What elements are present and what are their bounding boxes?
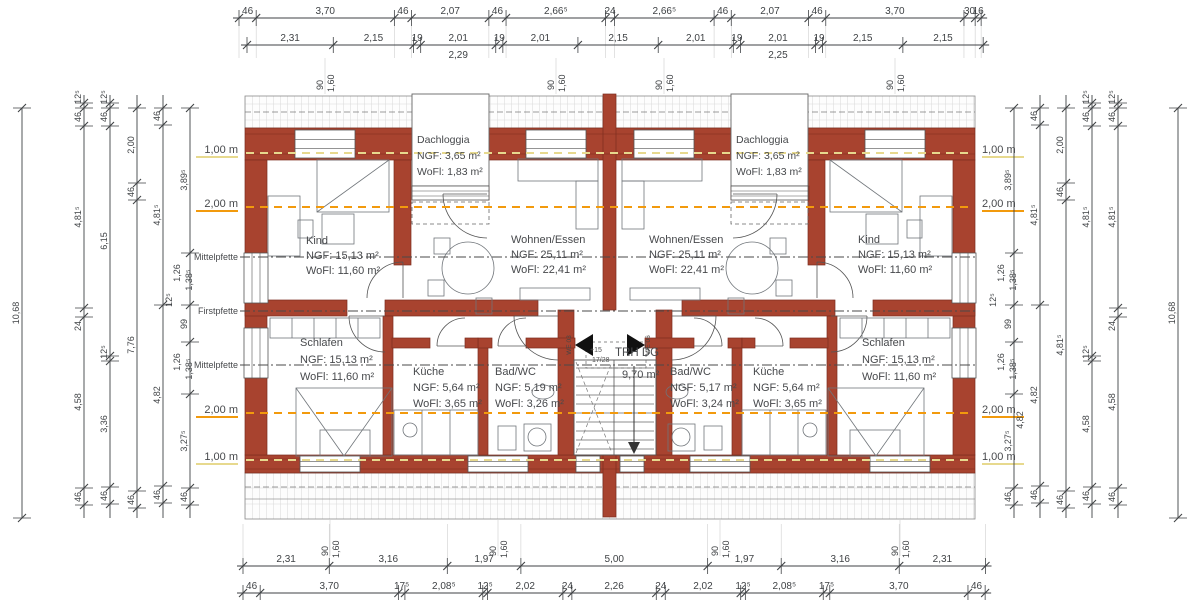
- dim-value: 5,00: [605, 554, 625, 565]
- dim-value: 46: [397, 6, 409, 17]
- window-dim: 90: [320, 546, 330, 556]
- dim-value: 46: [1055, 495, 1065, 505]
- room-label-kueche-right: KücheNGF: 5,64 m²WoFl: 3,65 m²: [753, 366, 822, 410]
- room-label-bad-right: Bad/WCNGF: 5,17 m²WoFl: 3,24 m²: [670, 366, 739, 410]
- room-label-line: NGF: 15,13 m²: [862, 354, 935, 366]
- dim-value: 12⁵: [988, 293, 998, 307]
- dimension-chain-top: 463,70462,07462,66⁵242,66⁵462,07463,7030…: [233, 6, 989, 61]
- dim-value: 3,70: [889, 581, 909, 592]
- pfette-label: Mittelpfette: [194, 252, 238, 262]
- room-label-line: NGF: 5,17 m²: [670, 382, 737, 394]
- room-label-line: WoFl: 22,41 m²: [649, 264, 724, 276]
- window-dim: 1,60: [896, 74, 906, 92]
- dim-value: 12⁵: [73, 90, 83, 104]
- dim-value: 2,15: [853, 33, 873, 44]
- window-dim: 1,60: [721, 540, 731, 558]
- dim-value: 4,82: [1029, 386, 1039, 404]
- dim-value: 46: [242, 6, 254, 17]
- height-label: 2,00 m: [982, 404, 1016, 416]
- stair-area: 9,70 m²: [622, 369, 660, 381]
- room-label-line: NGF: 5,19 m²: [495, 382, 562, 394]
- dim-value: 2,66⁵: [544, 6, 568, 17]
- stair-label: TRH DG: [615, 347, 659, 359]
- dim-value: 12⁵: [477, 581, 492, 592]
- dim-value: 2,02: [515, 581, 535, 592]
- dim-value: 2,31: [276, 554, 296, 565]
- dim-value: 24: [73, 321, 83, 331]
- dim-value: 2,15: [608, 33, 628, 44]
- window-dim: 1,60: [901, 540, 911, 558]
- room-label-bad-left: Bad/WCNGF: 5,19 m²WoFl: 3,26 m²: [495, 366, 564, 410]
- dim-value: 2,00: [1055, 136, 1065, 154]
- dim-value: 19: [412, 33, 424, 44]
- room-label-line: NGF: 25,11 m²: [649, 249, 721, 261]
- room-label-line: WoFl: 3,24 m²: [670, 398, 739, 410]
- dim-value: 2,31: [280, 33, 300, 44]
- dim-value: 12⁵: [1107, 90, 1117, 104]
- dim-value: 46: [1029, 490, 1039, 500]
- room-label-schlafen-left: SchlafenNGF: 15,13 m²WoFl: 11,60 m²: [300, 337, 375, 383]
- dim-value: 46: [1107, 492, 1117, 502]
- window-dim: 90: [315, 80, 325, 90]
- dim-value: 46: [717, 6, 729, 17]
- dim-value: 2,25: [768, 50, 788, 61]
- dim-value: 99: [1003, 319, 1013, 329]
- dim-value: 1,26: [996, 264, 1006, 282]
- dim-value: 46: [1081, 491, 1091, 501]
- dim-value: 4,81⁵: [1107, 206, 1117, 228]
- dim-value: 46: [1055, 187, 1065, 197]
- room-label-line: WoFl: 3,65 m²: [753, 398, 822, 410]
- height-label: 2,00 m: [204, 404, 238, 416]
- dim-value: 12⁵: [164, 293, 174, 307]
- room-label-line: WoFl: 22,41 m²: [511, 264, 586, 276]
- height-label: 1,00 m: [204, 451, 238, 463]
- dim-value: 46: [73, 112, 83, 122]
- dim-value: 3,70: [320, 581, 340, 592]
- dim-value: 10,68: [1167, 302, 1177, 325]
- stair-mark-plus: +15: [590, 347, 602, 354]
- dim-value: 2,15: [364, 33, 384, 44]
- window-dim: 90: [546, 80, 556, 90]
- dim-value: 4,81⁵: [152, 204, 162, 226]
- dim-value: 2,31: [933, 554, 953, 565]
- dim-value: 99: [179, 319, 189, 329]
- unit-label-right: WE 06: [645, 335, 652, 355]
- dim-value: 12⁵: [99, 90, 109, 104]
- height-label: 2,00 m: [982, 198, 1016, 210]
- dim-value: 2,66⁵: [653, 6, 677, 17]
- dim-value: 3,36: [99, 415, 109, 433]
- dim-value: 1,26: [172, 264, 182, 282]
- dim-value: 24: [605, 6, 617, 17]
- dim-value: 16: [973, 6, 985, 17]
- dim-value: 1,38⁵: [1008, 358, 1018, 380]
- room-label-line: NGF: 3,65 m²: [417, 150, 481, 162]
- room-label-kind-left: KindNGF: 15,13 m²WoFl: 11,60 m²: [306, 235, 381, 277]
- room-label-line: WoFl: 11,60 m²: [862, 371, 937, 383]
- dim-value: 46: [126, 495, 136, 505]
- dim-value: 4,81⁵: [1081, 206, 1091, 228]
- dim-value: 2,00: [126, 136, 136, 154]
- dim-value: 1,26: [172, 353, 182, 371]
- dim-value: 10,68: [11, 302, 21, 325]
- dim-value: 2,01: [686, 33, 706, 44]
- room-label-kind-right: KindNGF: 15,13 m²WoFl: 11,60 m²: [858, 234, 933, 276]
- window-dim: 90: [710, 546, 720, 556]
- dimension-columns-right: 10,683,89⁵1,261,38⁵9912⁵1,261,38⁵4,823,2…: [988, 90, 1187, 522]
- dim-value: 4,82: [1015, 411, 1025, 429]
- stair-mark-steps: 17/28: [592, 357, 610, 364]
- height-label: 1,00 m: [982, 451, 1016, 463]
- dim-value: 46: [152, 490, 162, 500]
- dim-value: 2,29: [448, 50, 468, 61]
- room-label-line: Dachloggia: [417, 134, 470, 146]
- room-label-line: NGF: 15,13 m²: [858, 249, 931, 261]
- dim-value: 4,58: [73, 393, 83, 411]
- room-label-line: Schlafen: [862, 337, 905, 349]
- dim-value: 1,38⁵: [184, 269, 194, 291]
- room-label-line: NGF: 15,13 m²: [300, 354, 373, 366]
- dim-value: 17⁵: [394, 581, 409, 592]
- dim-value: 12⁵: [1081, 345, 1091, 359]
- pfette-label: Mittelpfette: [194, 360, 238, 370]
- room-label-line: NGF: 3,65 m²: [736, 150, 800, 162]
- dim-value: 19: [494, 33, 506, 44]
- pfette-label: Firstpfette: [198, 306, 238, 316]
- room-label-line: WoFl: 1,83 m²: [736, 166, 802, 178]
- dim-value: 3,70: [885, 6, 905, 17]
- room-label-line: WoFl: 3,26 m²: [495, 398, 564, 410]
- dim-value: 3,70: [316, 6, 336, 17]
- dim-value: 12⁵: [99, 345, 109, 359]
- room-label-line: NGF: 15,13 m²: [306, 250, 379, 262]
- dim-value: 46: [126, 187, 136, 197]
- height-label: 1,00 m: [204, 144, 238, 156]
- room-label-line: Schlafen: [300, 337, 343, 349]
- dim-value: 46: [152, 111, 162, 121]
- dim-value: 3,89⁵: [179, 169, 189, 191]
- room-label-line: Küche: [413, 366, 444, 378]
- dim-value: 2,15: [933, 33, 953, 44]
- dim-value: 46: [1081, 112, 1091, 122]
- dim-value: 2,01: [531, 33, 551, 44]
- dim-value: 4,81⁵: [1029, 204, 1039, 226]
- height-label: 1,00 m: [982, 144, 1016, 156]
- dim-value: 4,81⁵: [1055, 334, 1065, 356]
- room-label-wohnen-right: Wohnen/EssenNGF: 25,11 m²WoFl: 22,41 m²: [649, 234, 724, 276]
- dim-value: 46: [1029, 111, 1039, 121]
- room-label-line: Dachloggia: [736, 134, 789, 146]
- dim-value: 46: [971, 581, 983, 592]
- dim-value: 46: [99, 112, 109, 122]
- dim-value: 3,27⁵: [179, 430, 189, 452]
- dim-value: 4,81⁵: [73, 206, 83, 228]
- window-dim: 90: [654, 80, 664, 90]
- window-dim: 90: [885, 80, 895, 90]
- dim-value: 2,02: [693, 581, 713, 592]
- dim-value: 46: [99, 491, 109, 501]
- dimension-chain-bottom: 2,313,161,975,001,973,162,31463,7017⁵2,0…: [237, 524, 992, 600]
- room-label-line: NGF: 25,11 m²: [511, 249, 583, 261]
- window-dim: 1,60: [499, 540, 509, 558]
- dim-value: 2,01: [448, 33, 468, 44]
- dim-value: 12⁵: [1081, 90, 1091, 104]
- dim-value: 46: [812, 6, 824, 17]
- room-label-line: Kind: [858, 234, 880, 246]
- floor-plan: DachloggiaNGF: 3,65 m²WoFl: 1,83 m²Dachl…: [0, 0, 1200, 600]
- dim-value: 4,58: [1081, 415, 1091, 433]
- dim-value: 19: [813, 33, 825, 44]
- window-dim: 90: [488, 546, 498, 556]
- dim-value: 2,01: [768, 33, 788, 44]
- dim-value: 17⁵: [819, 581, 834, 592]
- dim-value: 6,15: [99, 232, 109, 250]
- dim-value: 3,27⁵: [1003, 430, 1013, 452]
- window-dim: 1,60: [557, 74, 567, 92]
- room-label-line: WoFl: 11,60 m²: [306, 265, 381, 277]
- room-label-line: NGF: 5,64 m²: [413, 382, 480, 394]
- dim-value: 2,08⁵: [772, 581, 796, 592]
- room-label-line: NGF: 5,64 m²: [753, 382, 820, 394]
- dim-value: 46: [73, 492, 83, 502]
- dim-value: 4,82: [152, 386, 162, 404]
- unit-label-left: WE 03: [566, 335, 573, 355]
- dim-value: 46: [492, 6, 504, 17]
- room-label-line: Wohnen/Essen: [649, 234, 723, 246]
- dim-value: 3,16: [379, 554, 399, 565]
- dim-value: 2,07: [760, 6, 780, 17]
- window-dim: 1,60: [331, 540, 341, 558]
- dim-value: 1,26: [996, 353, 1006, 371]
- dim-value: 46: [246, 581, 258, 592]
- room-label-schlafen-right: SchlafenNGF: 15,13 m²WoFl: 11,60 m²: [862, 337, 937, 383]
- room-label-line: Bad/WC: [495, 366, 536, 378]
- window-dim: 90: [890, 546, 900, 556]
- dim-value: 2,26: [604, 581, 624, 592]
- dim-value: 1,38⁵: [1008, 269, 1018, 291]
- dim-value: 46: [179, 492, 189, 502]
- floor-plan-drawing: DachloggiaNGF: 3,65 m²WoFl: 1,83 m²Dachl…: [0, 0, 1200, 600]
- room-label-wohnen-left: Wohnen/EssenNGF: 25,11 m²WoFl: 22,41 m²: [511, 234, 586, 276]
- room-label-line: Wohnen/Essen: [511, 234, 585, 246]
- dim-value: 1,97: [735, 554, 755, 565]
- dim-value: 2,08⁵: [432, 581, 456, 592]
- room-label-line: Bad/WC: [670, 366, 711, 378]
- room-label-line: Kind: [306, 235, 328, 247]
- dim-value: 24: [562, 581, 574, 592]
- dim-value: 46: [1107, 112, 1117, 122]
- dim-value: 24: [1107, 321, 1117, 331]
- height-label: 2,00 m: [204, 198, 238, 210]
- dim-value: 1,38⁵: [184, 358, 194, 380]
- dim-value: 24: [655, 581, 667, 592]
- dim-value: 3,89⁵: [1003, 169, 1013, 191]
- dim-value: 19: [731, 33, 743, 44]
- room-label-line: WoFl: 1,83 m²: [417, 166, 483, 178]
- dimension-columns-left: 10,6812⁵464,81⁵244,584612⁵466,1512⁵3,364…: [11, 90, 199, 522]
- window-dim: 1,60: [326, 74, 336, 92]
- room-label-kueche-left: KücheNGF: 5,64 m²WoFl: 3,65 m²: [413, 366, 482, 410]
- dim-value: 12⁵: [735, 581, 750, 592]
- dim-value: 2,07: [440, 6, 460, 17]
- room-label-line: WoFl: 11,60 m²: [858, 264, 933, 276]
- dim-value: 7,76: [126, 336, 136, 354]
- room-label-line: Küche: [753, 366, 784, 378]
- dim-value: 46: [1003, 492, 1013, 502]
- room-label-line: WoFl: 3,65 m²: [413, 398, 482, 410]
- dim-value: 4,58: [1107, 393, 1117, 411]
- dim-value: 3,16: [830, 554, 850, 565]
- window-dim: 1,60: [665, 74, 675, 92]
- room-label-line: WoFl: 11,60 m²: [300, 371, 375, 383]
